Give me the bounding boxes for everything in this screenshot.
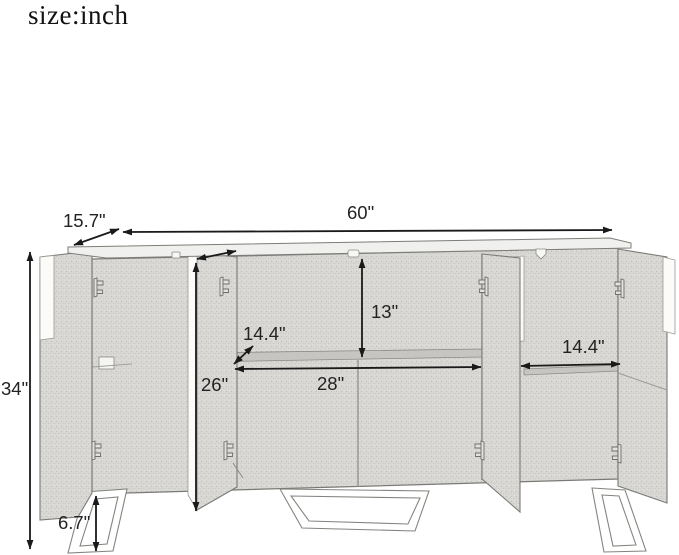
dimension-label-side-interior-width: 14.4" <box>562 336 605 357</box>
dimension-label-overall-height: 34" <box>1 378 28 399</box>
top-clip <box>172 252 180 258</box>
product-dimension-diagram: size:inch <box>0 0 679 555</box>
shelf-pin <box>99 357 114 369</box>
right-door-edge-strip <box>663 257 675 334</box>
middle-leg <box>280 489 429 531</box>
sideboard-diagram: 60"15.7"34"13"14.4"26"28"14.4"6.7" <box>0 0 679 555</box>
dimension-label-interior-height: 26" <box>201 374 228 395</box>
dimension-label-leg-height: 6.7" <box>58 512 90 533</box>
dimension-arrow-overall-width <box>123 230 612 232</box>
dimension-label-upper-compartment-height: 13" <box>371 301 398 322</box>
dimension-label-top-depth: 15.7" <box>63 210 106 231</box>
dimension-label-middle-interior-width: 28" <box>317 373 344 394</box>
dimension-label-shelf-depth: 14.4" <box>243 323 286 344</box>
left-door-edge-strip <box>40 256 54 341</box>
top-clip <box>348 250 359 257</box>
dimension-label-overall-width: 60" <box>347 202 374 223</box>
right-leg <box>592 488 646 552</box>
dimension-arrow-top-depth <box>74 229 119 245</box>
